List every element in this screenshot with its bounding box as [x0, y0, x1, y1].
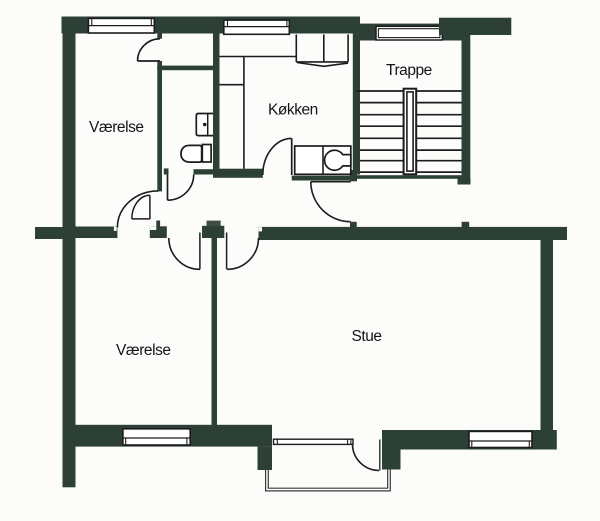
svg-text:Værelse: Værelse [89, 119, 144, 136]
svg-text:Køkken: Køkken [268, 102, 318, 119]
svg-text:Værelse: Værelse [116, 342, 171, 359]
svg-text:Stue: Stue [352, 328, 382, 345]
svg-text:Trappe: Trappe [386, 62, 432, 79]
